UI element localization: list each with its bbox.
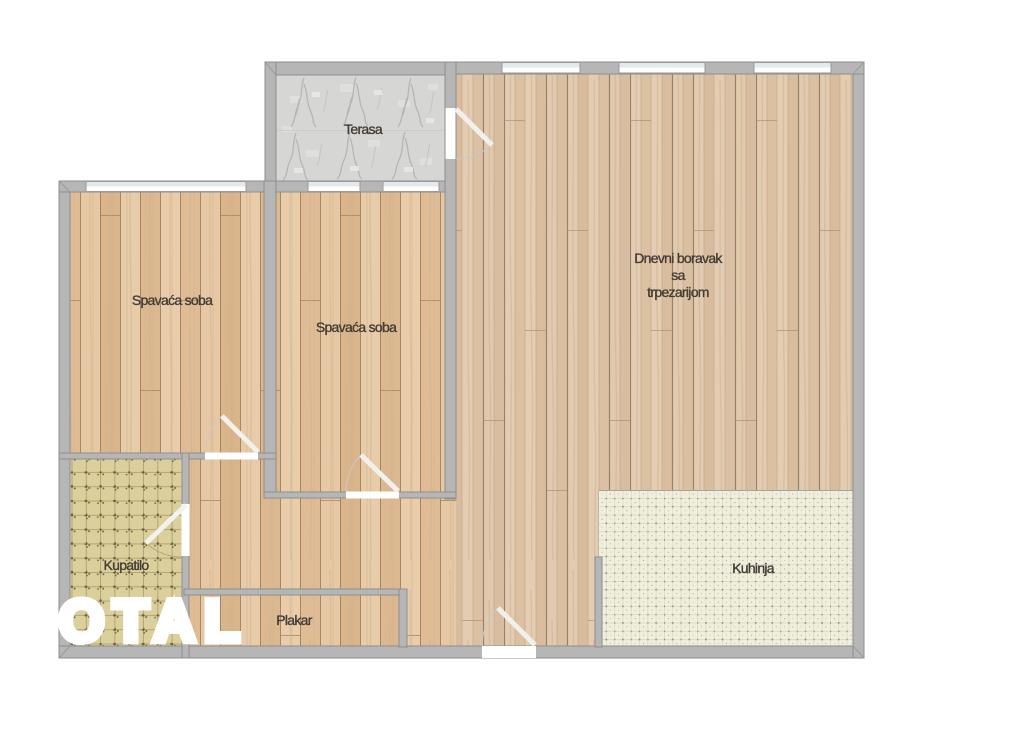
svg-text:trpezarijom: trpezarijom [647,284,709,300]
svg-text:Plakar: Plakar [276,612,313,628]
svg-text:Kupatilo: Kupatilo [104,557,150,573]
svg-text:Terasa: Terasa [344,121,383,137]
svg-text:Spavaća soba: Spavaća soba [132,292,213,308]
svg-text:Spavaća soba: Spavaća soba [316,319,397,335]
svg-text:OTAL: OTAL [59,589,249,654]
svg-text:sa: sa [671,267,685,283]
svg-text:Dnevni boravak: Dnevni boravak [634,250,723,266]
svg-text:Kuhinja: Kuhinja [732,560,775,576]
